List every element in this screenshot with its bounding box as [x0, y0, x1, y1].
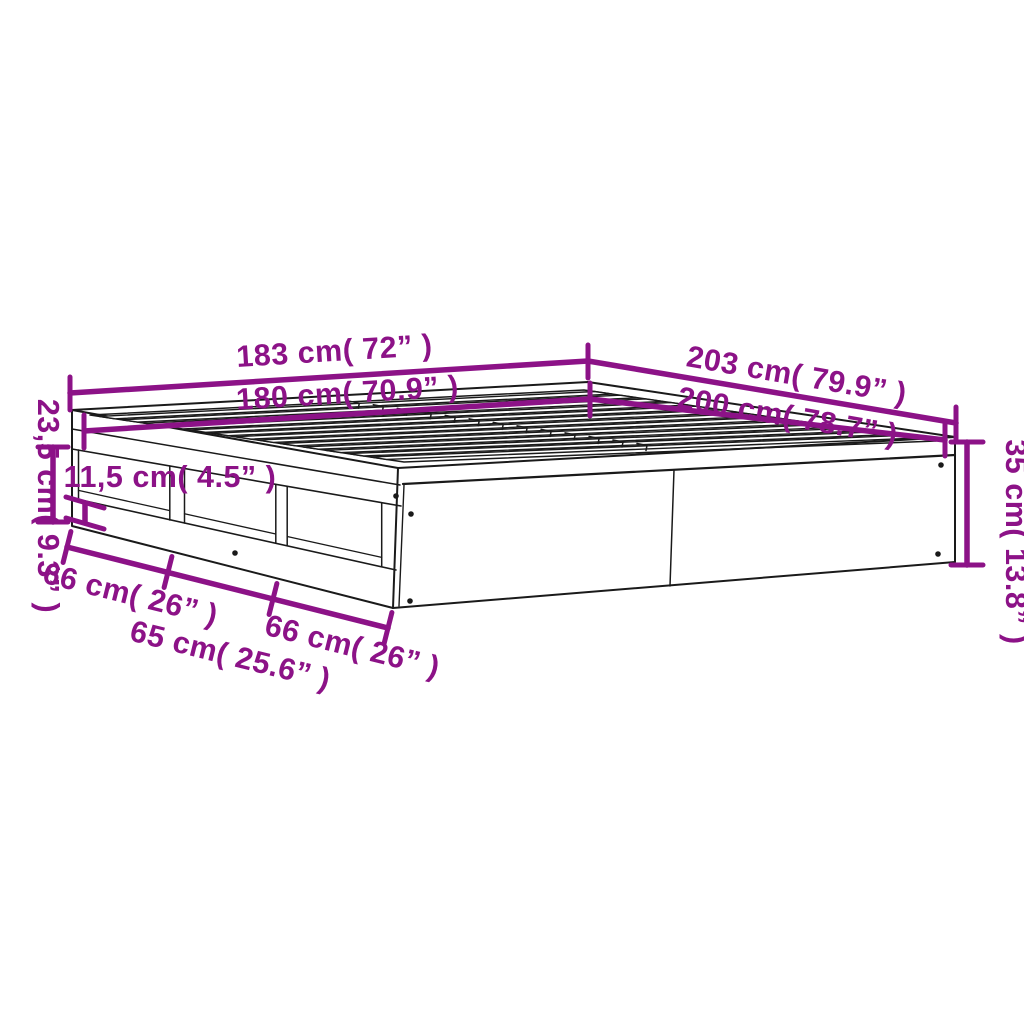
- screw-hole-dot: [938, 462, 944, 468]
- dim-frame-height-label: 35 cm( 13.8” ): [999, 439, 1024, 644]
- dim-compartment-1-label: 66 cm( 26” ): [40, 556, 222, 632]
- shelf-floor-line-2: [185, 514, 276, 534]
- screw-hole-dot: [408, 511, 414, 517]
- bed-frame-dimension-diagram: 183 cm( 72” ) 180 cm( 70.9” ) 203 cm( 79…: [0, 0, 1024, 1024]
- dim-base-height-label: 11,5 cm( 4.5” ): [64, 460, 277, 494]
- dimension-annotations: 183 cm( 72” ) 180 cm( 70.9” ) 203 cm( 79…: [31, 328, 1024, 697]
- screw-hole-dot: [232, 550, 238, 556]
- dimension-diagram-canvas: 183 cm( 72” ) 180 cm( 70.9” ) 203 cm( 79…: [0, 0, 1024, 1024]
- panel-divider-line: [670, 470, 674, 586]
- front-corner-post-line: [399, 485, 404, 606]
- screw-hole-dot: [393, 493, 399, 499]
- dim-width-outer-label: 183 cm( 72” ): [235, 328, 433, 374]
- front-panel-face: [232, 437, 955, 608]
- screw-hole-dot: [935, 551, 941, 557]
- screw-hole-dot: [407, 598, 413, 604]
- shelf-floor-line-3: [287, 537, 382, 558]
